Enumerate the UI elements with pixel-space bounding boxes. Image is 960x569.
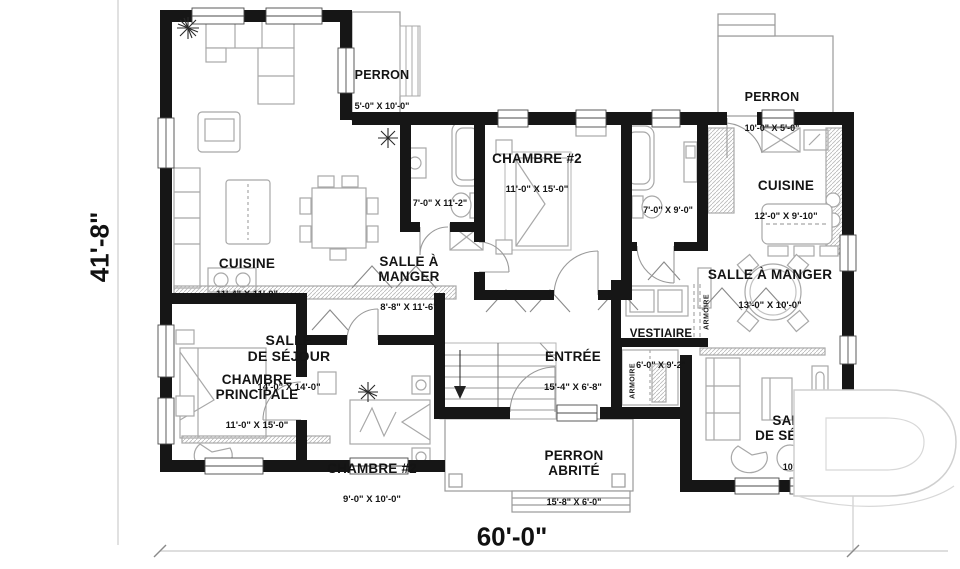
room-dims: 12'-0" X 9'-10" — [754, 212, 817, 223]
armchair — [198, 112, 240, 152]
room-dims: 9'-0" X 10'-0" — [327, 495, 417, 506]
room-label-salle-de-bain-1: 7'-0" X 11'-2" — [413, 179, 467, 226]
room-label-salle-a-manger-right: SALLE À MANGER 13'-0" X 10'-0" — [708, 249, 832, 329]
room-name: PERRON ABRITÉ — [545, 448, 604, 478]
room-label-chambre-2-bottom: CHAMBRE #2 9'-0" X 10'-0" — [327, 443, 417, 523]
room-label-perron-top-right: PERRON 10'-0" X 5'-0" — [745, 72, 800, 151]
room-dims: 15'-4" X 6'-8" — [544, 383, 602, 394]
room-name: CHAMBRE PRINCIPALE — [216, 372, 299, 402]
room-label-vestiaire: VESTIAIRE 6'-0" X 9'-2" — [630, 310, 693, 388]
room-name: PERRON — [355, 68, 410, 82]
plant-icon — [177, 17, 199, 39]
room-label-chambre-principale: CHAMBRE PRINCIPALE 11'-0" X 15'-0" — [216, 354, 299, 450]
room-dims: 7'-0" X 9'-0" — [643, 205, 693, 215]
room-name: CHAMBRE #2 — [327, 461, 417, 476]
room-label-cuisine-left: CUISINE 11'-4" X 11'-0" — [216, 238, 278, 318]
room-label-salle-a-manger-left: SALLE À MANGER 8'-8" X 11'-6" — [378, 236, 439, 332]
room-dims: 11'-4" X 11'-0" — [216, 290, 278, 301]
room-label-chambre-2-top: CHAMBRE #2 11'-0" X 15'-0" — [492, 133, 582, 213]
room-dims: 7'-0" X 11'-2" — [413, 198, 467, 208]
room-label-salle-de-bain-2: 7'-0" X 9'-0" — [643, 186, 693, 233]
stairs-arrow — [454, 350, 466, 399]
floor-plan-page: SALLE DE SÉJOUR 14'-0" X 14'-0" PERRON 5… — [0, 0, 960, 569]
room-dims: 10'-0" X 5'-0" — [745, 123, 800, 133]
room-dims: 11'-0" X 15'-0" — [492, 185, 582, 196]
room-label-perron-top-left: PERRON 5'-0" X 10'-0" — [355, 50, 410, 129]
room-name: SALLE À MANGER — [378, 254, 439, 284]
room-dims: 8'-8" X 11'-6" — [378, 303, 439, 314]
armoire-label-entree: ARMOIRE — [630, 363, 637, 399]
armoire-label-vestiaire: ARMOIRE — [704, 294, 711, 330]
room-dims: 11'-0" X 15'-0" — [216, 421, 299, 432]
overall-height-dimension: 41'-8" — [85, 212, 116, 283]
room-name: VESTIAIRE — [630, 328, 693, 341]
room-name: CUISINE — [216, 256, 278, 271]
room-dims: 13'-0" X 10'-0" — [708, 301, 832, 312]
room-dims: 15'-8" X 6'-0" — [545, 497, 604, 507]
room-name: SALLE À MANGER — [708, 267, 832, 282]
plant-icon — [358, 382, 378, 402]
room-name: ENTRÉE — [544, 349, 602, 364]
room-name: CHAMBRE #2 — [492, 151, 582, 166]
room-dims: 6'-0" X 9'-2" — [630, 360, 693, 370]
plant-icon — [378, 128, 398, 148]
room-label-cuisine-right: CUISINE 12'-0" X 9'-10" — [754, 160, 817, 240]
room-name: CUISINE — [754, 178, 817, 193]
watermark-logo — [788, 386, 960, 516]
room-name: PERRON — [745, 90, 800, 104]
room-dims: 5'-0" X 10'-0" — [355, 101, 410, 111]
sofa-left — [206, 16, 294, 104]
room-label-entree: ENTRÉE 15'-4" X 6'-8" — [544, 331, 602, 411]
room-label-perron-abrite: PERRON ABRITÉ 15'-8" X 6'-0" — [545, 430, 604, 525]
overall-width-dimension: 60'-0" — [477, 522, 548, 553]
dining-table-left — [300, 176, 378, 260]
